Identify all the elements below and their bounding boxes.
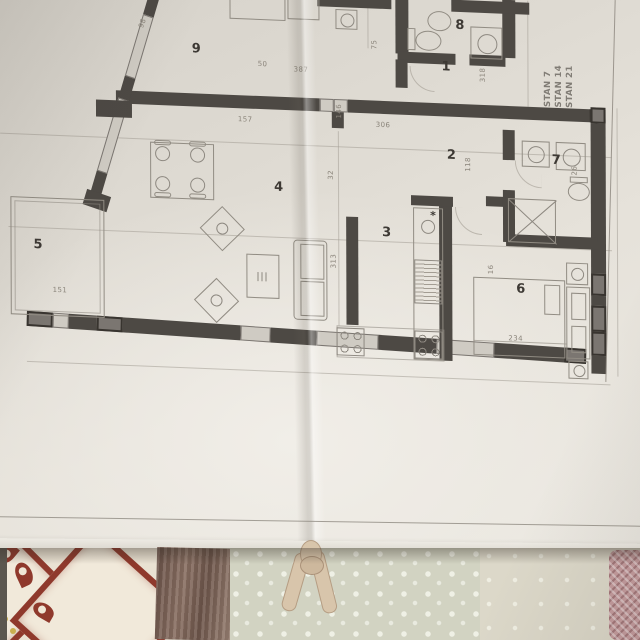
dim-label: 234 bbox=[508, 334, 523, 343]
terrace-5-inner-line bbox=[14, 200, 100, 314]
room-label-1: 1 bbox=[441, 59, 450, 74]
toilet bbox=[568, 182, 590, 201]
dim-label: 50 bbox=[258, 60, 268, 68]
room-label-2: 2 bbox=[447, 148, 456, 163]
washing-machine bbox=[470, 26, 502, 59]
dim-label: 157 bbox=[238, 115, 253, 124]
terrace-furniture bbox=[229, 0, 285, 21]
wall-room1-spur bbox=[396, 59, 408, 88]
wall-room7-left bbox=[503, 130, 515, 161]
dim-label: 75 bbox=[370, 40, 378, 50]
chair-back bbox=[189, 193, 206, 199]
wc-sink bbox=[335, 9, 357, 30]
room-label-4: 4 bbox=[274, 180, 283, 195]
dining-chair bbox=[190, 177, 205, 193]
dining-chair bbox=[155, 176, 170, 192]
room-label-8: 8 bbox=[455, 18, 464, 33]
dim-label: 387 bbox=[294, 65, 309, 74]
wc-toilet bbox=[427, 11, 451, 32]
dim-label: 306 bbox=[376, 121, 391, 130]
dim-label: 118 bbox=[464, 157, 472, 172]
coffee-table bbox=[246, 254, 279, 299]
unit-label-stack: STAN 7 STAN 14 STAN 21 bbox=[543, 49, 576, 108]
bathroom-sink bbox=[522, 141, 550, 168]
chair-back bbox=[154, 192, 171, 198]
dimension-line bbox=[617, 108, 619, 376]
dim-label: 16 bbox=[487, 264, 495, 274]
dotted-fabric bbox=[230, 548, 480, 640]
armchair bbox=[194, 278, 239, 323]
wood-strip bbox=[155, 547, 235, 640]
wall-junction-block bbox=[96, 99, 132, 117]
unit-label: STAN 14 bbox=[554, 49, 565, 107]
toilet-tank bbox=[570, 177, 588, 184]
unit-label: STAN 7 bbox=[543, 49, 554, 107]
dimension-line bbox=[27, 361, 611, 385]
dim-label: 313 bbox=[330, 254, 338, 269]
ribbon-tail bbox=[308, 549, 338, 615]
yellow-bead bbox=[10, 628, 16, 634]
room-label-5: 5 bbox=[34, 237, 43, 252]
door-arc bbox=[410, 66, 435, 92]
floor-plan-drawing: 9 8 1 2 7 4 5 3 6 * STAN 7 STAN 14 STAN … bbox=[0, 0, 640, 454]
photo-of-floor-plan: 9 8 1 2 7 4 5 3 6 * STAN 7 STAN 14 STAN … bbox=[0, 0, 640, 640]
shower bbox=[508, 198, 556, 244]
stove bbox=[337, 327, 365, 356]
room-label-6: 6 bbox=[516, 281, 525, 296]
sofa bbox=[293, 239, 327, 320]
door-arc bbox=[455, 207, 482, 235]
room-label-7: 7 bbox=[552, 153, 561, 168]
wall-top bbox=[116, 90, 606, 123]
diamond-tile bbox=[10, 548, 172, 640]
nightstand bbox=[566, 262, 588, 285]
nightstand bbox=[568, 361, 588, 380]
chair-back bbox=[154, 140, 171, 146]
dim-label: 26 bbox=[571, 166, 579, 176]
wardrobe bbox=[566, 286, 590, 359]
toilet-tank bbox=[407, 28, 415, 50]
unit-label: STAN 21 bbox=[565, 50, 576, 108]
fabric-background bbox=[0, 548, 640, 640]
dim-label: 32 bbox=[327, 170, 335, 180]
wall-kitchen-left bbox=[346, 217, 358, 326]
room-label-3: 3 bbox=[382, 225, 391, 240]
dining-chair bbox=[190, 147, 205, 163]
quilt-diamond-patch bbox=[0, 548, 172, 640]
room-label-9: 9 bbox=[192, 41, 201, 56]
petal-motif bbox=[0, 548, 20, 566]
dim-label: 151 bbox=[53, 286, 68, 295]
dim-label: 318 bbox=[479, 67, 487, 82]
ribbon-tail bbox=[280, 551, 311, 613]
dining-chair bbox=[155, 146, 170, 162]
toilet bbox=[415, 30, 441, 51]
armchair bbox=[200, 206, 245, 251]
ribbon-knot bbox=[300, 556, 324, 575]
terrace-furniture bbox=[287, 0, 319, 20]
star-annotation: * bbox=[430, 209, 436, 222]
dimension-line bbox=[0, 133, 612, 159]
pink-lace bbox=[609, 550, 640, 640]
chair-back bbox=[189, 141, 206, 147]
ribbon-loop bbox=[300, 540, 322, 568]
wall-kitchen-top bbox=[411, 195, 453, 207]
dim-label: 146 bbox=[335, 104, 343, 119]
kitchen-shelf bbox=[414, 259, 442, 304]
dimension-line bbox=[338, 131, 340, 325]
